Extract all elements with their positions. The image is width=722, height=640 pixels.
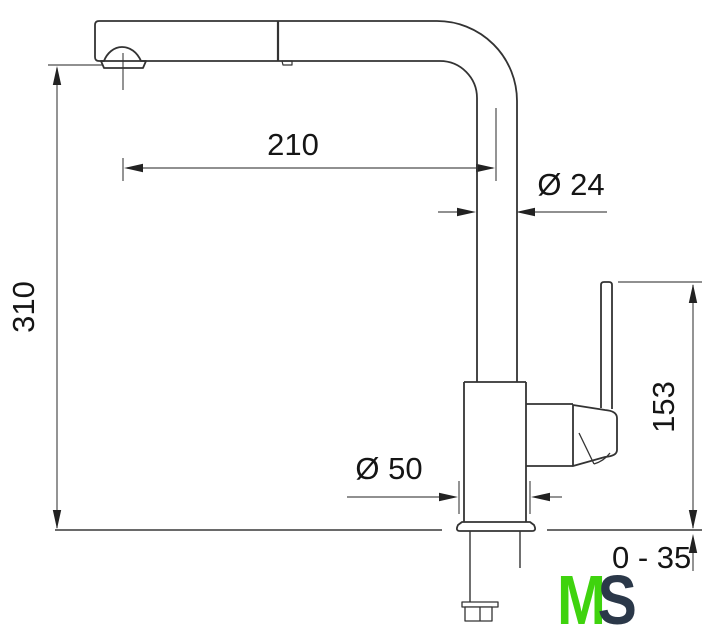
dim-spout-reach-label: 210	[253, 129, 333, 161]
dim-base-diameter-label: Ø 50	[341, 453, 437, 485]
faucet-outline	[95, 21, 617, 621]
technical-drawing-page: 210 Ø 24 310 153 Ø 50 0 - 35 MS	[0, 0, 722, 640]
brand-logo: MS	[557, 565, 637, 635]
dimension-lines	[48, 53, 702, 571]
dim-overall-height-label: 310	[8, 267, 40, 347]
logo-letter-s: S	[598, 561, 637, 639]
dim-tube-diameter-label: Ø 24	[523, 169, 619, 201]
dim-handle-height-label: 153	[648, 367, 680, 447]
